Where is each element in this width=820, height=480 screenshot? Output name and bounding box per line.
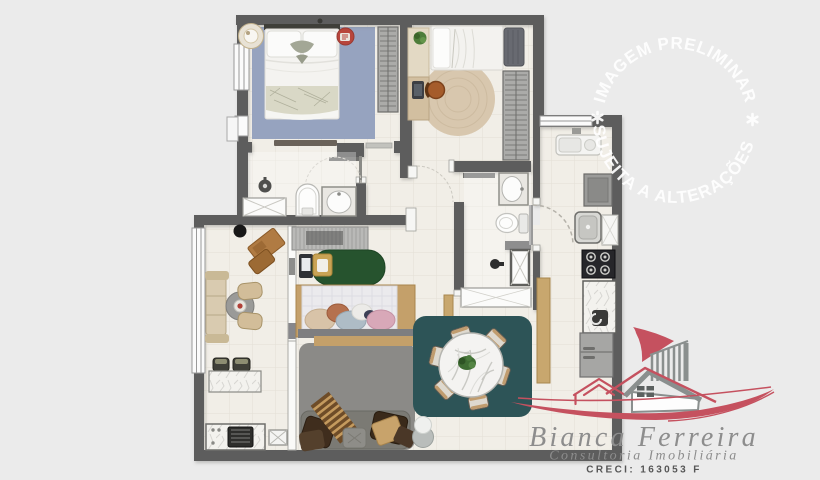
svg-text:Consultoria Imobiliária: Consultoria Imobiliária [549, 449, 738, 464]
svg-text:CRECI: 163053 F: CRECI: 163053 F [586, 465, 701, 476]
